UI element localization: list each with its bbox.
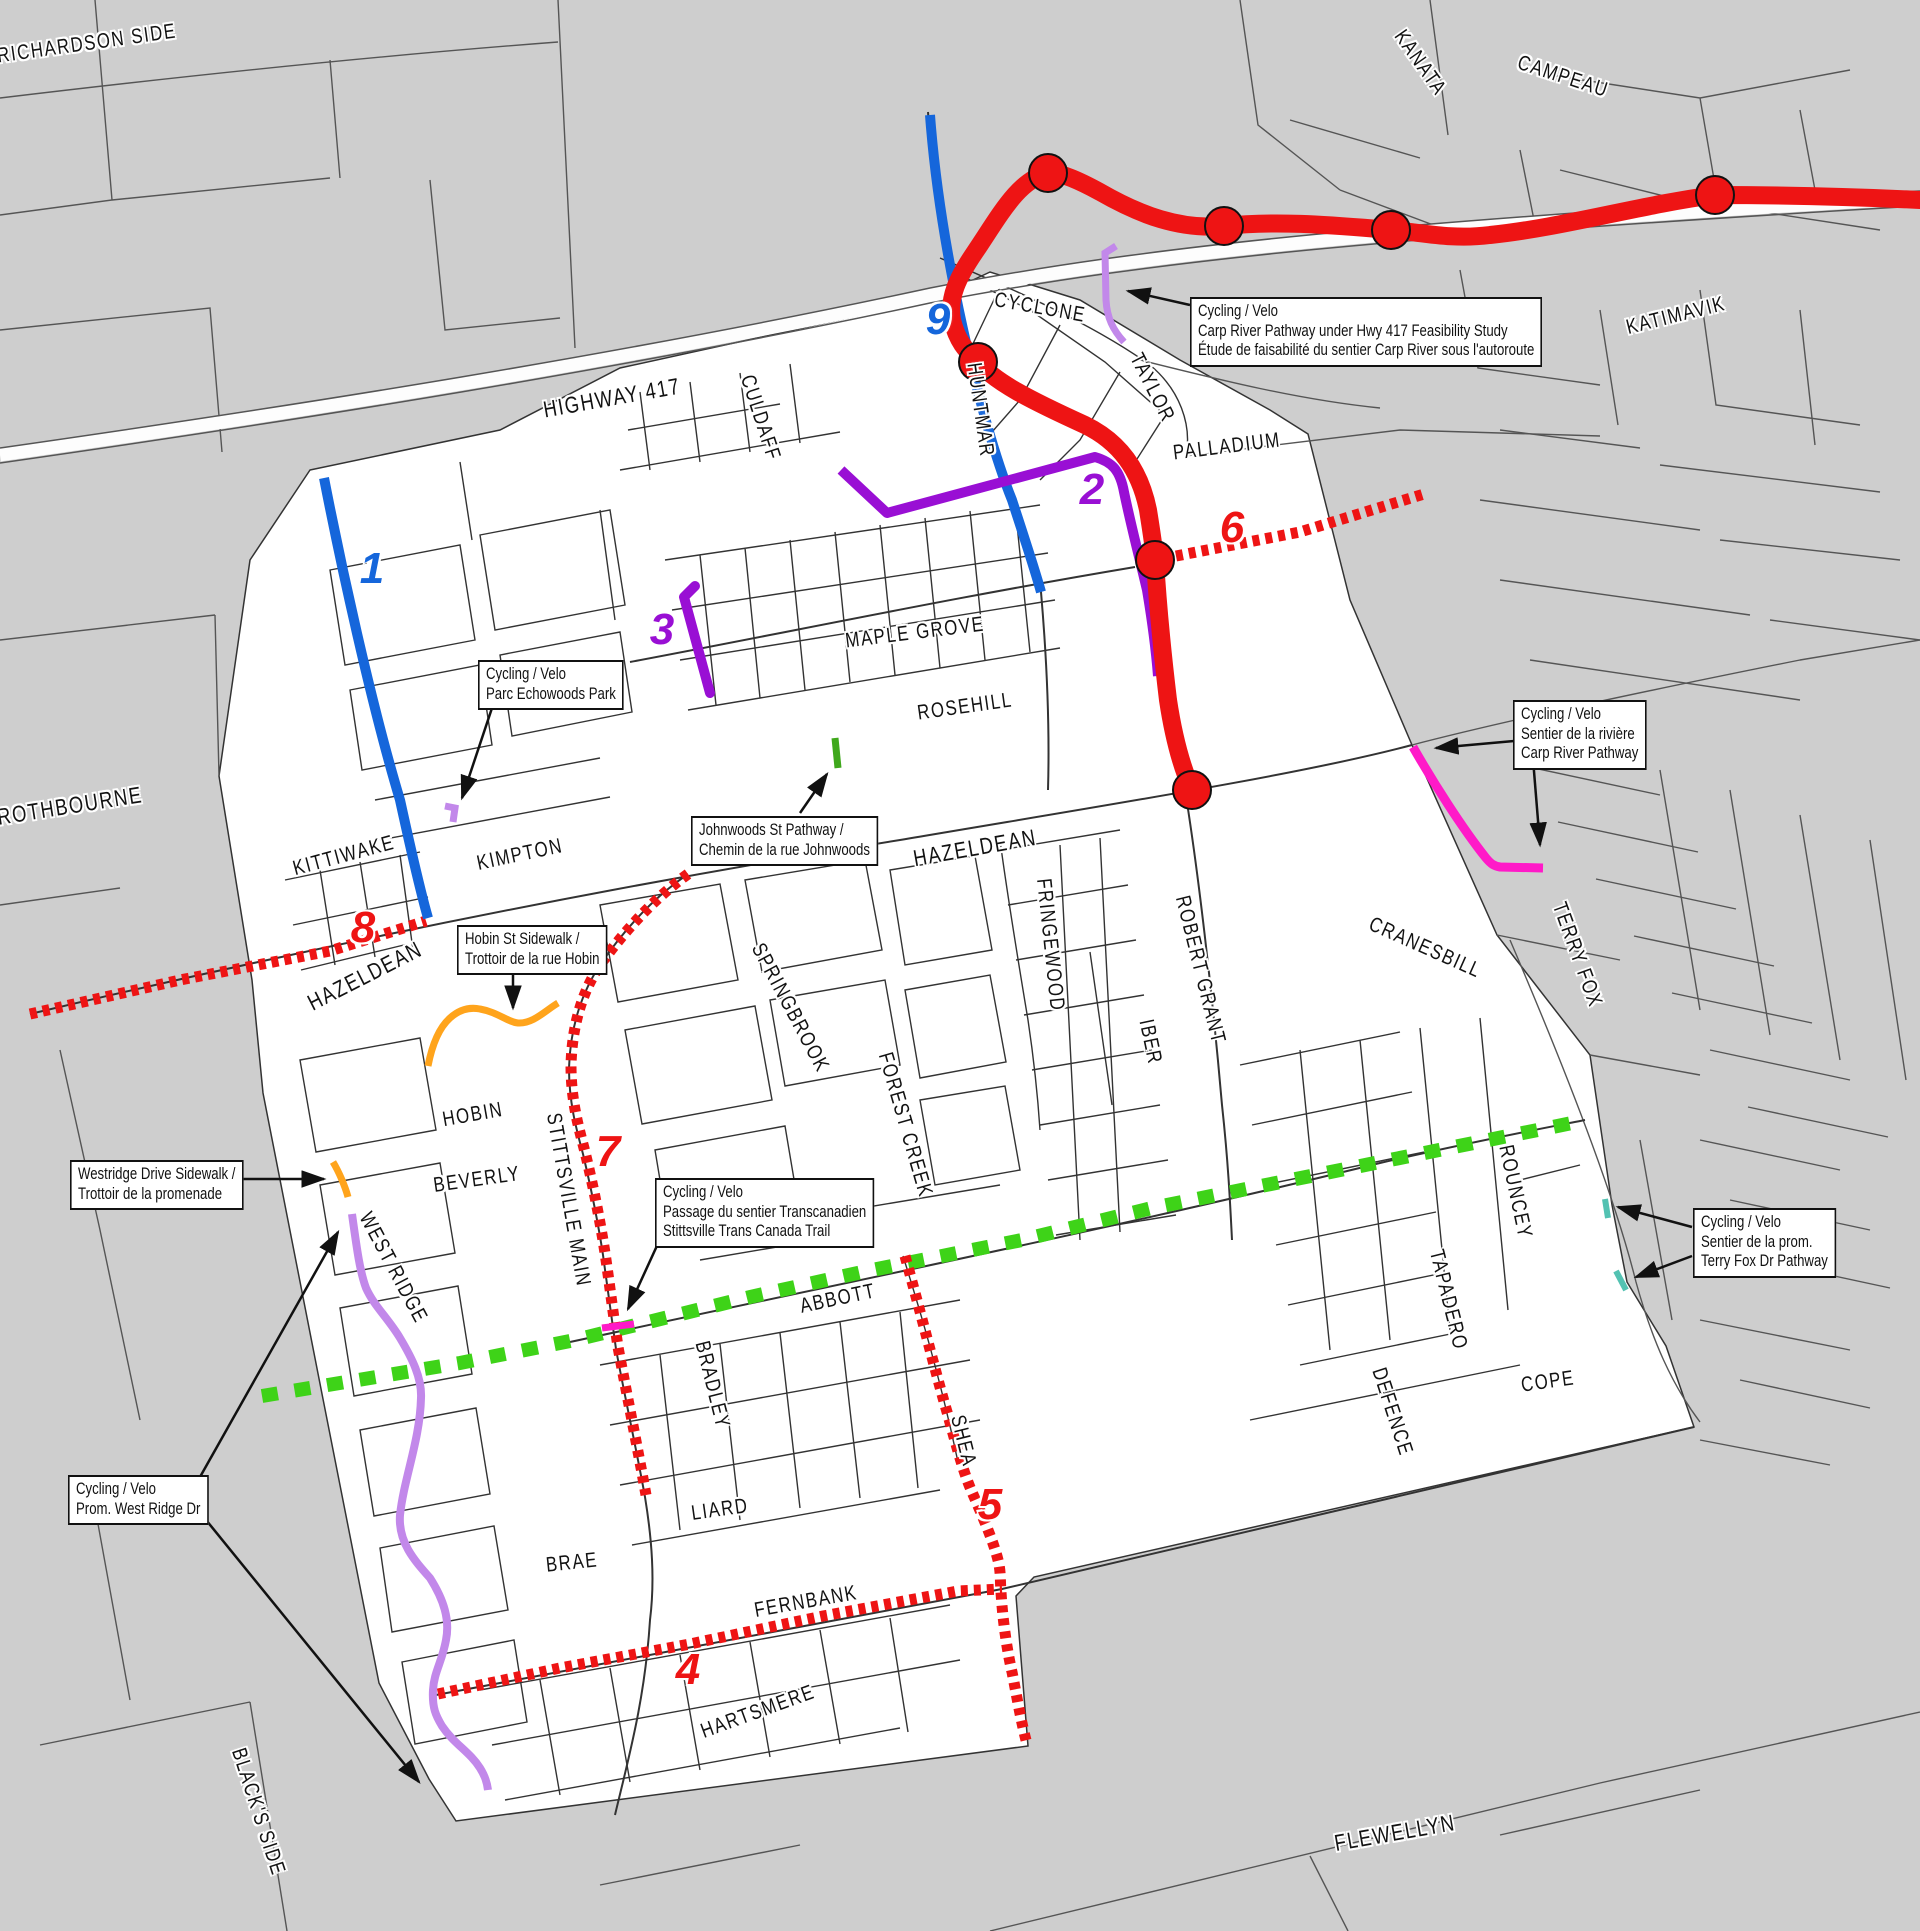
callout-line: Chemin de la rue Johnwoods xyxy=(699,841,870,861)
callout-line: Cycling / Velo xyxy=(663,1183,866,1203)
callout-carp-hwy417-study: Cycling / Velo Carp River Pathway under … xyxy=(1190,297,1542,367)
callout-line: Passage du sentier Transcanadien xyxy=(663,1203,866,1223)
map-graphics xyxy=(0,0,1920,1931)
callout-line: Étude de faisabilité du sentier Carp Riv… xyxy=(1198,341,1534,361)
segment-terryfox-teal-1 xyxy=(1605,1199,1608,1218)
route-marker-1: 1 xyxy=(360,544,384,594)
callout-line: Cycling / Velo xyxy=(1701,1213,1828,1233)
segment-johnwoods-green xyxy=(835,738,838,768)
callout-echowoods-park: Cycling / Velo Parc Echowoods Park xyxy=(478,660,624,710)
callout-hobin-sidewalk: Hobin St Sidewalk / Trottoir de la rue H… xyxy=(457,925,608,975)
callout-line: Carp River Pathway xyxy=(1521,744,1638,764)
callout-line: Sentier de la rivière xyxy=(1521,725,1638,745)
callout-line: Trottoir de la promenade xyxy=(78,1185,235,1205)
route-marker-2: 2 xyxy=(1080,465,1104,515)
segment-transcanada-pink xyxy=(602,1324,634,1328)
route-marker-5: 5 xyxy=(978,1480,1002,1530)
callout-line: Parc Echowoods Park xyxy=(486,685,616,705)
callout-line: Carp River Pathway under Hwy 417 Feasibi… xyxy=(1198,322,1534,342)
route-marker-6: 6 xyxy=(1220,503,1244,553)
callout-prom-west-ridge: Cycling / Velo Prom. West Ridge Dr xyxy=(68,1475,208,1525)
callout-line: Cycling / Velo xyxy=(1198,302,1534,322)
route-marker-7: 7 xyxy=(596,1127,620,1177)
callout-line: Sentier de la prom. xyxy=(1701,1233,1828,1253)
callout-line: Cycling / Velo xyxy=(486,665,616,685)
route-marker-3: 3 xyxy=(650,605,674,655)
route-marker-4: 4 xyxy=(676,1645,700,1695)
callout-line: Cycling / Velo xyxy=(76,1480,200,1500)
route-marker-8: 8 xyxy=(351,903,375,953)
callout-carp-river-pathway: Cycling / Velo Sentier de la rivière Car… xyxy=(1513,700,1646,770)
callout-westridge-sidewalk: Westridge Drive Sidewalk / Trottoir de l… xyxy=(70,1160,243,1210)
callout-line: Cycling / Velo xyxy=(1521,705,1638,725)
route-marker-9: 9 xyxy=(926,295,950,345)
callout-line: Prom. West Ridge Dr xyxy=(76,1500,200,1520)
callout-line: Stittsville Trans Canada Trail xyxy=(663,1222,866,1242)
callout-line: Westridge Drive Sidewalk / xyxy=(78,1165,235,1185)
callout-line: Hobin St Sidewalk / xyxy=(465,930,600,950)
callout-line: Terry Fox Dr Pathway xyxy=(1701,1252,1828,1272)
callout-line: Johnwoods St Pathway / xyxy=(699,821,870,841)
callout-terry-fox-pathway: Cycling / Velo Sentier de la prom. Terry… xyxy=(1693,1208,1836,1278)
map-canvas: RICHARDSON SIDE KANATA CAMPEAU KATIMAVIK… xyxy=(0,0,1920,1931)
callout-line: Trottoir de la rue Hobin xyxy=(465,950,600,970)
callout-trans-canada-trail: Cycling / Velo Passage du sentier Transc… xyxy=(655,1178,874,1248)
callout-johnwoods-pathway: Johnwoods St Pathway / Chemin de la rue … xyxy=(691,816,878,866)
